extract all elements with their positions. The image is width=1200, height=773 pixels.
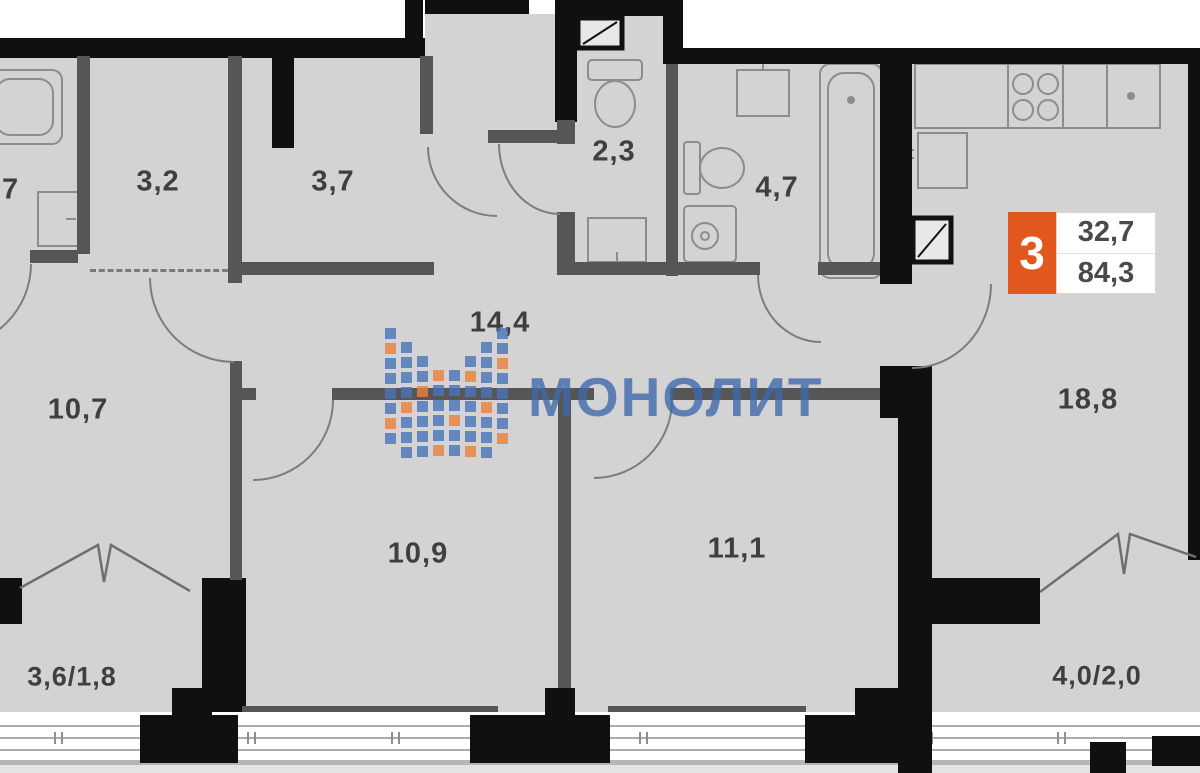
room-label-wardrobe: 3,2 [136,166,179,199]
room-label-wc: 2,3 [592,136,635,169]
badge-total-area: 84,3 [1057,253,1155,294]
partition-wall [818,262,880,275]
wall-segment [898,412,932,664]
partition-wall [242,388,256,400]
wall-pier [1152,736,1200,766]
room-label-bedroom2: 11,1 [708,533,767,566]
room-label-corridor: 10,7 [48,394,108,427]
partition-wall [230,361,242,580]
dashed-partition [90,269,228,272]
wall-pier [805,715,900,763]
wall-segment [683,48,1188,64]
wall-pier [545,688,575,716]
partition-wall [557,120,575,144]
room-label-balcony-right: 4,0/2,0 [1052,661,1142,692]
monolit-watermark: МОНОЛИТ [528,365,823,429]
floor-shaft [577,16,665,64]
monolit-logo-icon [385,318,525,468]
room-label-hall-top: 3,7 [311,166,354,199]
wall-segment [272,56,294,148]
badge-living-area: 32,7 [1057,213,1155,253]
partition-wall [30,250,78,263]
floor-plan: ,7 3,2 3,7 2,3 4,7 14,4 10,7 10,9 11,1 1… [0,0,1200,773]
wall-pier [855,688,898,718]
room-label-bath-left: ,7 [0,174,19,207]
wall-segment [0,578,22,624]
wall-segment [880,62,912,284]
wall-pier [1090,742,1126,773]
wall-segment [425,0,529,14]
partition-wall [558,400,571,692]
partition-wall [666,262,760,275]
wall-segment [0,38,425,58]
room-label-bathroom: 4,7 [755,172,798,205]
partition-wall [666,64,678,276]
wall-segment [555,0,577,122]
partition-wall [420,56,433,134]
partition-wall [240,262,434,275]
wall-segment [1188,48,1200,560]
badge-areas: 32,7 84,3 [1056,212,1156,294]
room-label-kitchen-living: 18,8 [1058,384,1118,417]
wall-pier [470,715,610,763]
wall-pier [172,688,212,716]
apartment-badge: 3 32,7 84,3 [1008,212,1156,294]
badge-room-count: 3 [1008,212,1056,294]
outer-sill [0,765,1200,773]
wall-pier [932,578,1040,624]
partition-wall [228,56,242,283]
wall-pier [140,715,238,763]
wall-segment [663,0,683,64]
partition-wall [77,56,90,254]
wall-segment [405,0,423,56]
room-label-bedroom1: 10,9 [388,538,448,571]
floor-vestibule [425,14,555,134]
wall-segment [880,366,932,418]
partition-wall [488,130,557,143]
room-label-balcony-left: 3,6/1,8 [27,662,117,693]
partition-wall [557,262,678,275]
wall-pier [898,660,932,773]
